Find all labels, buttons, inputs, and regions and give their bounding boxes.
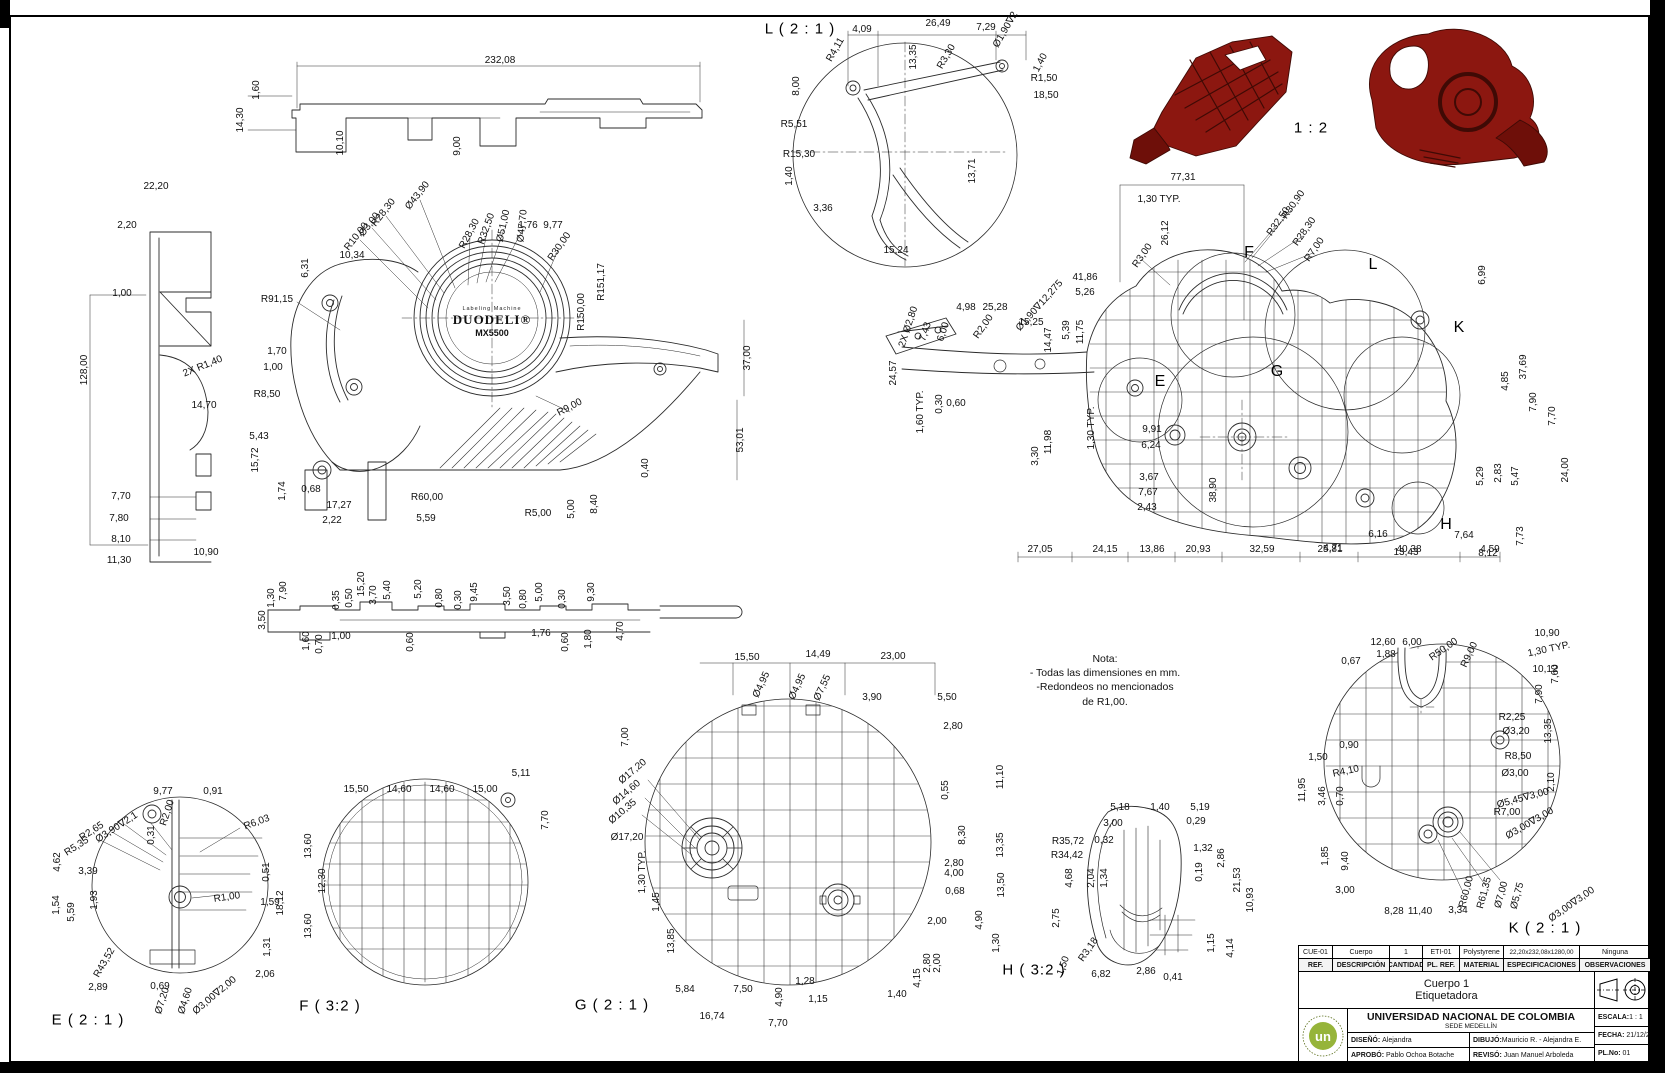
view-detail-G-drawing [642,663,935,985]
projection-symbol [1594,972,1650,1009]
dibujo-value: Mauricio R. - Alejandra E. [1502,1037,1581,1044]
fecha-value: 21/12/2021 [1626,1032,1650,1039]
view-left-profile-drawing [90,232,211,562]
logo-brand: DUODELI® [447,312,537,328]
view-top-profile-drawing [248,62,702,152]
escala-cell: ESCALA:1 : 1 [1594,1009,1650,1027]
view-main-side-drawing [291,200,744,520]
tb-especificaciones-label: ESPECIFICACIONES [1503,959,1579,972]
tb-material-value: Polystyrene [1459,946,1503,959]
tb-plref-value: ETI-01 [1422,946,1459,959]
view-detail-E-drawing [92,797,268,973]
aprobo-label: APROBÓ: [1351,1052,1384,1059]
university-name: UNIVERSIDAD NACIONAL DE COLOMBIA [1367,1011,1575,1023]
part-title-line2: Etiquetadora [1415,990,1477,1002]
aprobo-cell: APROBÓ: Pablo Ochoa Botache [1347,1048,1469,1063]
reviso-value: Juan Manuel Arboleda [1504,1052,1574,1059]
drawing-note: Nota: - Todas las dimensiones en mm. -Re… [1020,652,1190,709]
tb-observaciones-label: OBSERVACIONES [1579,959,1650,972]
diseno-label: DISEÑÓ: [1351,1037,1380,1044]
aprobo-value: Pablo Ochoa Botache [1386,1052,1454,1059]
view-detail-K-drawing [1324,644,1560,890]
fecha-label: FECHA: [1598,1032,1624,1039]
note-line: de R1,00. [1020,695,1190,709]
plano-cell: PL.No: 01 [1594,1045,1650,1063]
tb-material-label: MATERIAL [1459,959,1503,972]
tb-descripcion-label: DESCRIPCIÓN [1332,959,1389,972]
projection-symbol-icon [1597,975,1649,1005]
reviso-cell: REVISÓ: Juan Manuel Arboleda [1469,1048,1594,1063]
reviso-label: REVISÓ: [1473,1052,1502,1059]
dibujo-label: DIBUJÓ: [1473,1037,1502,1044]
un-logo: un [1299,1009,1347,1063]
svg-text:un: un [1315,1029,1331,1044]
tb-especificaciones-value: 22,20x232,08x1280,00 [1503,946,1579,959]
view-detail-F-drawing [322,779,528,985]
note-line: -Redondeos no mencionados [1020,680,1190,694]
iso-render-front [1369,29,1547,167]
view-detail-L-drawing [792,31,1026,267]
plano-value: 01 [1623,1050,1631,1057]
part-title-line1: Cuerpo 1 [1424,978,1469,990]
iso-render-back [1130,36,1292,164]
sheet-frame [0,0,1665,1073]
tb-ref-value: CUE-01 [1299,946,1332,959]
view-rear-drawing [886,185,1500,562]
tb-cantidad-value: 1 [1389,946,1422,959]
escala-value: 1 : 1 [1629,1014,1643,1021]
plano-label: PL.No: [1598,1050,1621,1057]
diseno-cell: DISEÑÓ: Alejandra [1347,1033,1469,1048]
view-bottom-profile-drawing [268,602,742,640]
note-title: Nota: [1020,652,1190,666]
tb-observaciones-value: Ninguna [1579,946,1650,959]
tb-plref-label: PL. REF. [1422,959,1459,972]
logo-model: MX5500 [447,328,537,338]
un-logo-icon: un [1301,1014,1345,1058]
fecha-cell: FECHA: 21/12/2021 [1594,1027,1650,1045]
duodeli-logo: Labeling Machine DUODELI® MX5500 [447,306,537,338]
escala-label: ESCALA: [1598,1014,1629,1021]
tb-ref-label: REF. [1299,959,1332,972]
tb-cantidad-label: CANTIDAD [1389,959,1422,972]
note-line: - Todas las dimensiones en mm. [1020,666,1190,680]
diseno-value: Alejandra [1382,1037,1412,1044]
view-detail-H-drawing [1087,806,1195,965]
cad-line-art [0,0,1665,1073]
title-block: CUE-01 Cuerpo 1 ETI-01 Polystyrene 22,20… [1298,945,1649,1062]
campus-name: SEDE MEDELLÍN [1445,1023,1497,1030]
tb-descripcion-value: Cuerpo [1332,946,1389,959]
dibujo-cell: DIBUJÓ:Mauricio R. - Alejandra E. [1469,1033,1594,1048]
drawing-sheet: Nota: - Todas las dimensiones en mm. -Re… [0,0,1665,1073]
